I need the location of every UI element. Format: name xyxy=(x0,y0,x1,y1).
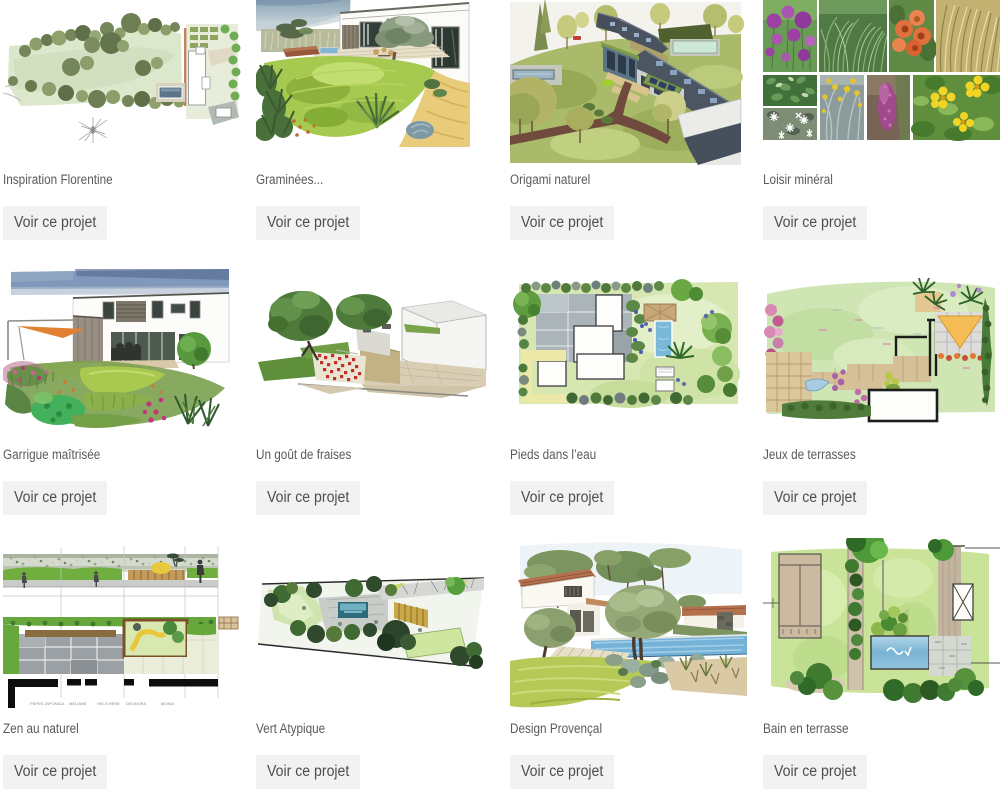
svg-text:PIERIS JAPONICA: PIERIS JAPONICA xyxy=(30,701,65,706)
svg-text:MONIA: MONIA xyxy=(161,701,174,706)
svg-text:HELICHERE: HELICHERE xyxy=(97,701,120,706)
svg-text:DEODORA: DEODORA xyxy=(126,701,147,706)
svg-text:MELIANE: MELIANE xyxy=(69,701,87,706)
